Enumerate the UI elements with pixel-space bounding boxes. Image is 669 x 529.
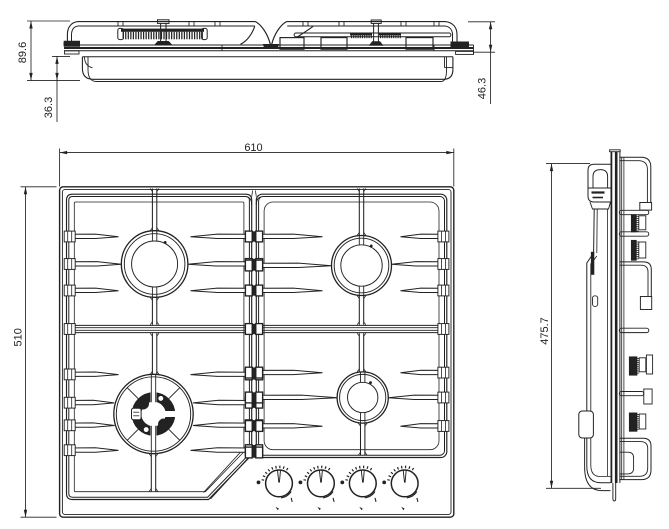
svg-text:46.3: 46.3 [477, 78, 489, 99]
svg-text:89.6: 89.6 [17, 42, 29, 63]
svg-text:36.3: 36.3 [43, 97, 55, 118]
svg-text:475.7: 475.7 [539, 317, 551, 345]
svg-text:510: 510 [13, 328, 25, 346]
svg-text:610: 610 [244, 142, 262, 154]
